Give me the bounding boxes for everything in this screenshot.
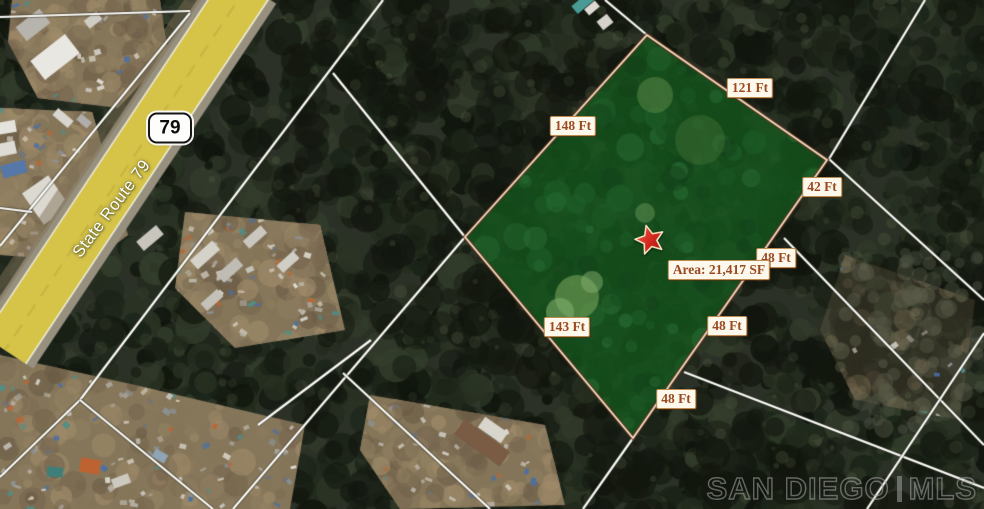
watermark-divider <box>897 476 902 502</box>
parcel-measurement-label-143ft: 143 Ft <box>544 317 590 337</box>
parcel-measurement-label-48ft-2: 48 Ft <box>707 316 747 336</box>
watermark-suffix: MLS <box>909 473 977 504</box>
parcel-measurement-label-121ft: 121 Ft <box>727 78 773 98</box>
mls-watermark: SAN DIEGO MLS <box>707 473 977 504</box>
satellite-imagery-canvas <box>0 0 984 509</box>
map-surface: 79 State Route 79 148 Ft 121 Ft 42 Ft 48… <box>0 0 984 509</box>
parcel-measurement-label-42ft: 42 Ft <box>802 177 842 197</box>
parcel-area-label: Area: 21,417 SF <box>668 260 770 280</box>
watermark-brand: SAN DIEGO <box>707 473 890 504</box>
star-icon <box>632 222 667 256</box>
route-79-shield: 79 <box>148 113 192 144</box>
parcel-measurement-label-148ft: 148 Ft <box>550 116 596 136</box>
parcel-measurement-label-48ft-3: 48 Ft <box>656 389 696 409</box>
